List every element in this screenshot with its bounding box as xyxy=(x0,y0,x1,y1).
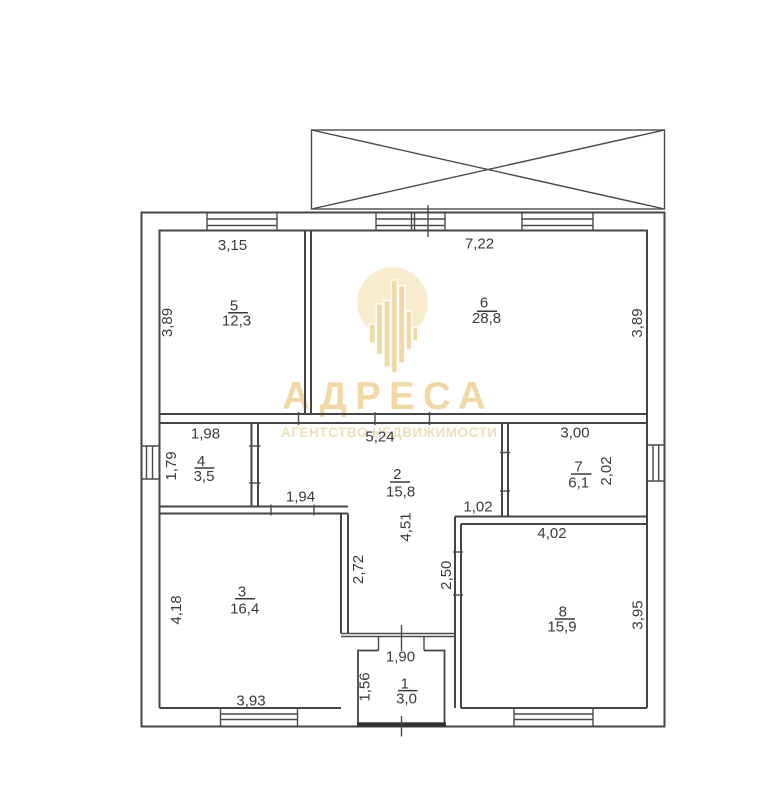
svg-text:2,72: 2,72 xyxy=(350,555,367,584)
svg-text:3,95: 3,95 xyxy=(629,600,646,629)
svg-text:2: 2 xyxy=(393,466,401,483)
svg-text:3,93: 3,93 xyxy=(236,693,265,710)
svg-text:3,00: 3,00 xyxy=(560,425,589,442)
svg-text:12,3: 12,3 xyxy=(222,313,251,330)
svg-text:7: 7 xyxy=(574,458,582,475)
svg-text:4,18: 4,18 xyxy=(168,595,185,624)
svg-text:7,22: 7,22 xyxy=(465,236,494,253)
svg-text:6,1: 6,1 xyxy=(568,475,589,492)
svg-text:2,02: 2,02 xyxy=(598,456,615,485)
svg-text:АДРЕСА: АДРЕСА xyxy=(282,375,494,418)
svg-text:5,24: 5,24 xyxy=(365,429,394,446)
svg-text:3,5: 3,5 xyxy=(194,468,215,485)
svg-text:1,02: 1,02 xyxy=(463,499,492,516)
svg-text:4,51: 4,51 xyxy=(398,512,415,541)
svg-text:2,50: 2,50 xyxy=(438,561,455,590)
svg-text:3,0: 3,0 xyxy=(396,691,417,708)
svg-text:4,02: 4,02 xyxy=(537,525,566,542)
svg-text:1,98: 1,98 xyxy=(191,426,220,443)
svg-text:3,89: 3,89 xyxy=(159,308,176,337)
svg-text:15,8: 15,8 xyxy=(386,484,415,501)
svg-text:1,79: 1,79 xyxy=(163,451,180,480)
svg-text:1,90: 1,90 xyxy=(386,649,415,666)
svg-text:3,15: 3,15 xyxy=(218,237,247,254)
svg-text:28,8: 28,8 xyxy=(472,310,501,327)
svg-text:3,89: 3,89 xyxy=(629,308,646,337)
svg-text:1,94: 1,94 xyxy=(286,489,315,506)
svg-text:16,4: 16,4 xyxy=(230,601,259,618)
svg-text:15,9: 15,9 xyxy=(547,619,576,636)
svg-text:1,56: 1,56 xyxy=(357,672,374,701)
